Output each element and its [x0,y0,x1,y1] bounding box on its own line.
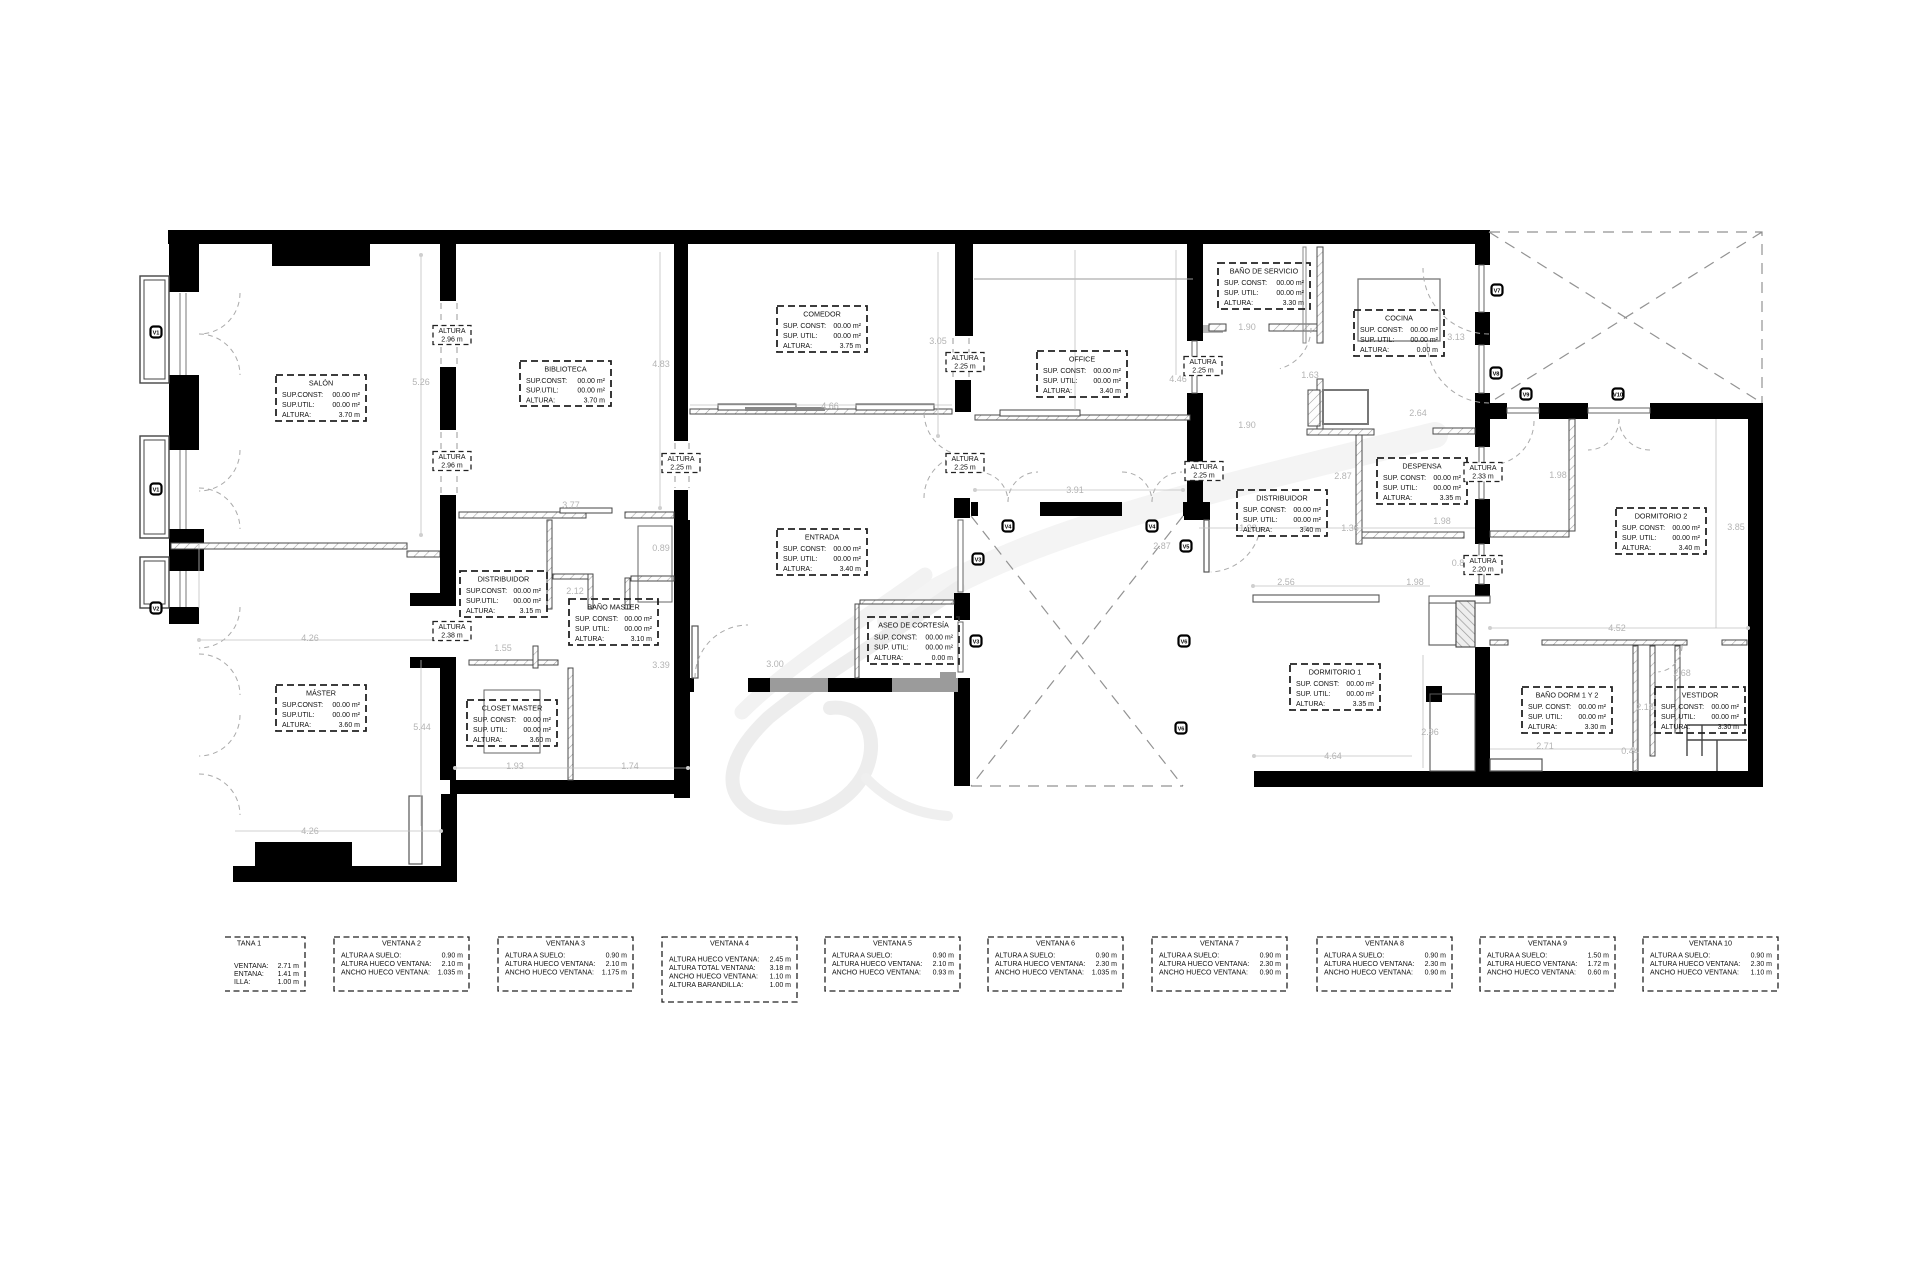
svg-text:1.10 m: 1.10 m [770,974,792,981]
svg-text:0.90 m: 0.90 m [933,953,955,960]
svg-text:00.00 m²: 00.00 m² [624,616,652,623]
svg-text:V7: V7 [1494,288,1501,294]
svg-text:3.60 m: 3.60 m [339,722,361,729]
svg-text:0.93 m: 0.93 m [933,970,955,977]
svg-text:V3: V3 [975,557,982,563]
svg-text:0.90 m: 0.90 m [442,953,464,960]
svg-text:ALTURA:: ALTURA: [783,343,812,350]
svg-text:00.00 m²: 00.00 m² [1433,485,1461,492]
svg-text:0.00 m: 0.00 m [932,655,954,662]
svg-text:VENTANA 3: VENTANA 3 [546,939,585,948]
svg-text:ALTURA: ALTURA [1190,464,1217,471]
svg-text:SUP. CONST:: SUP. CONST: [874,634,917,641]
svg-text:ALTURA A SUELO:: ALTURA A SUELO: [832,953,892,960]
svg-text:SUP. UTIL:: SUP. UTIL: [575,626,610,633]
svg-text:SUP. CONST:: SUP. CONST: [1661,704,1704,711]
svg-text:1.175 m: 1.175 m [602,970,627,977]
svg-text:ALTURA A SUELO:: ALTURA A SUELO: [1487,953,1547,960]
svg-text:0.44: 0.44 [1621,746,1639,756]
svg-text:2.30 m: 2.30 m [1425,961,1447,968]
svg-text:SUP. UTIL:: SUP. UTIL: [1661,714,1696,721]
svg-text:V6: V6 [1181,639,1188,645]
svg-text:1.035 m: 1.035 m [438,970,463,977]
svg-text:2.12: 2.12 [566,586,584,596]
svg-text:00.00 m²: 00.00 m² [1293,517,1321,524]
svg-text:00.00 m²: 00.00 m² [513,588,541,595]
svg-text:DORMITORIO 2: DORMITORIO 2 [1635,512,1688,521]
svg-text:DORMITORIO 1: DORMITORIO 1 [1309,668,1362,677]
svg-text:BAÑO DE SERVICIO: BAÑO DE SERVICIO [1230,267,1299,276]
svg-text:1.36: 1.36 [1341,523,1359,533]
svg-text:V4: V4 [1149,524,1157,530]
svg-text:V1: V1 [153,330,160,336]
svg-text:V1: V1 [153,487,160,493]
svg-text:3.39: 3.39 [652,660,670,670]
svg-text:00.00 m²: 00.00 m² [523,717,551,724]
svg-text:00.00 m²: 00.00 m² [1276,290,1304,297]
svg-text:VENTANA 4: VENTANA 4 [710,939,749,948]
svg-text:2.33 m: 2.33 m [1472,474,1494,481]
svg-text:ALTURA:: ALTURA: [282,412,311,419]
svg-text:ALTURA:: ALTURA: [1224,300,1253,307]
svg-text:1.98: 1.98 [1406,577,1424,587]
svg-text:2.64: 2.64 [1409,408,1427,418]
svg-text:ANCHO HUECO VENTANA:: ANCHO HUECO VENTANA: [995,970,1084,977]
svg-text:SUP. CONST:: SUP. CONST: [1296,681,1339,688]
svg-text:00.00 m²: 00.00 m² [1093,378,1121,385]
svg-text:2.87: 2.87 [1334,471,1352,481]
svg-text:1.10 m: 1.10 m [1751,970,1773,977]
svg-text:V6: V6 [1178,726,1185,732]
svg-text:3.35 m: 3.35 m [1440,495,1462,502]
svg-text:00.00 m²: 00.00 m² [1346,681,1374,688]
svg-text:0.89: 0.89 [652,543,670,553]
svg-text:ALTURA HUECO VENTANA:: ALTURA HUECO VENTANA: [995,961,1085,968]
svg-text:SUP. CONST:: SUP. CONST: [473,717,516,724]
svg-text:ALTURA HUECO VENTANA:: ALTURA HUECO VENTANA: [1159,961,1249,968]
svg-text:ALTURA HUECO VENTANA:: ALTURA HUECO VENTANA: [669,957,759,964]
svg-text:ANCHO HUECO VENTANA:: ANCHO HUECO VENTANA: [505,970,594,977]
svg-text:0.90 m: 0.90 m [1425,953,1447,960]
svg-text:1.98: 1.98 [1433,516,1451,526]
svg-text:3.75 m: 3.75 m [840,343,862,350]
svg-text:ALTURA HUECO VENTANA:: ALTURA HUECO VENTANA: [1324,961,1414,968]
svg-text:ALTURA HUECO VENTANA:: ALTURA HUECO VENTANA: [1487,961,1577,968]
svg-text:1.41 m: 1.41 m [278,971,300,978]
svg-text:SUP. CONST:: SUP. CONST: [1383,475,1426,482]
svg-text:00.00 m²: 00.00 m² [332,702,360,709]
svg-text:ANCHO HUECO VENTANA:: ANCHO HUECO VENTANA: [1487,970,1576,977]
svg-text:ASEO DE CORTESÍA: ASEO DE CORTESÍA [878,621,949,630]
svg-text:ALTURA: ALTURA [951,355,978,362]
svg-text:00.00 m²: 00.00 m² [577,388,605,395]
svg-text:ANCHO HUECO VENTANA:: ANCHO HUECO VENTANA: [1324,970,1413,977]
svg-text:3.85: 3.85 [1727,522,1745,532]
svg-text:VENTANA 8: VENTANA 8 [1365,939,1404,948]
svg-text:1.74: 1.74 [621,761,639,771]
svg-text:V5: V5 [1183,544,1190,550]
svg-text:V2: V2 [153,606,160,612]
svg-text:ANCHO HUECO VENTANA:: ANCHO HUECO VENTANA: [1650,970,1739,977]
svg-text:3.35 m: 3.35 m [1353,701,1375,708]
svg-text:ALTURA:: ALTURA: [1528,724,1557,731]
svg-text:00.00 m²: 00.00 m² [833,546,861,553]
svg-text:00.00 m²: 00.00 m² [1711,704,1739,711]
svg-text:00.00 m²: 00.00 m² [1672,535,1700,542]
svg-text:ALTURA: ALTURA [438,328,465,335]
svg-text:ALTURA: ALTURA [1189,359,1216,366]
svg-text:1.00 m: 1.00 m [770,982,792,989]
svg-text:2.68: 2.68 [1673,668,1691,678]
svg-text:SUP. UTIL:: SUP. UTIL: [1243,517,1278,524]
svg-text:00.00 m²: 00.00 m² [332,402,360,409]
svg-text:4.26: 4.26 [301,826,319,836]
svg-text:0.00 m: 0.00 m [1417,347,1439,354]
svg-text:2.25 m: 2.25 m [1193,473,1215,480]
svg-text:0.90 m: 0.90 m [1260,970,1282,977]
svg-text:1.55: 1.55 [494,643,512,653]
svg-text:4.26: 4.26 [301,633,319,643]
svg-text:1.72 m: 1.72 m [1588,961,1610,968]
svg-text:4.64: 4.64 [1324,751,1342,761]
svg-text:3.30 m: 3.30 m [1718,724,1740,731]
svg-text:3.60 m: 3.60 m [530,737,552,744]
svg-text:2.96: 2.96 [1421,727,1439,737]
svg-text:ALTURA A SUELO:: ALTURA A SUELO: [1159,953,1219,960]
svg-text:ALTURA:: ALTURA: [1296,701,1325,708]
svg-text:ALTURA:: ALTURA: [1661,724,1690,731]
svg-text:3.30 m: 3.30 m [1585,724,1607,731]
svg-text:SUP.UTIL:: SUP.UTIL: [466,598,499,605]
svg-text:3.13: 3.13 [1447,332,1465,342]
svg-text:0.90 m: 0.90 m [1096,953,1118,960]
svg-text:SUP.UTIL:: SUP.UTIL: [526,388,559,395]
svg-text:ALTURA:: ALTURA: [466,608,495,615]
svg-text:2.10 m: 2.10 m [442,961,464,968]
svg-text:2.25 m: 2.25 m [954,465,976,472]
svg-text:CLOSET MASTER: CLOSET MASTER [482,704,543,713]
svg-text:ALTURA: ALTURA [1469,465,1496,472]
svg-text:00.00 m²: 00.00 m² [1433,475,1461,482]
svg-text:ANCHO HUECO VENTANA:: ANCHO HUECO VENTANA: [341,970,430,977]
svg-text:0.90 m: 0.90 m [606,953,628,960]
svg-text:SUP. CONST:: SUP. CONST: [1224,280,1267,287]
svg-text:2.96 m: 2.96 m [441,463,463,470]
svg-text:ALTURA:: ALTURA: [1383,495,1412,502]
svg-text:ALTURA A SUELO:: ALTURA A SUELO: [1650,953,1710,960]
svg-text:SUP. UTIL:: SUP. UTIL: [1383,485,1418,492]
svg-text:1.035 m: 1.035 m [1092,970,1117,977]
svg-text:00.00 m²: 00.00 m² [624,626,652,633]
svg-text:2.96 m: 2.96 m [441,337,463,344]
svg-text:2.30 m: 2.30 m [1260,961,1282,968]
svg-text:ENTANA:: ENTANA: [234,971,264,978]
svg-text:00.00 m²: 00.00 m² [513,598,541,605]
svg-text:ALTURA: ALTURA [438,454,465,461]
svg-text:VENTANA:: VENTANA: [234,963,269,970]
svg-text:VENTANA 9: VENTANA 9 [1528,939,1567,948]
svg-text:3.15 m: 3.15 m [520,608,542,615]
svg-text:0.90 m: 0.90 m [1425,970,1447,977]
svg-text:4.66: 4.66 [821,401,839,411]
svg-text:SUP. UTIL:: SUP. UTIL: [1360,337,1395,344]
svg-text:ALTURA A SUELO:: ALTURA A SUELO: [505,953,565,960]
svg-text:VENTANA 7: VENTANA 7 [1200,939,1239,948]
svg-text:0.90 m: 0.90 m [1260,953,1282,960]
svg-text:SUP. CONST:: SUP. CONST: [783,323,826,330]
svg-text:SUP. UTIL:: SUP. UTIL: [1622,535,1657,542]
svg-text:2.25 m: 2.25 m [670,465,692,472]
svg-text:BAÑO MASTER: BAÑO MASTER [587,603,639,612]
svg-text:2.87: 2.87 [1153,541,1171,551]
svg-text:SUP.UTIL:: SUP.UTIL: [282,712,315,719]
svg-text:SUP. CONST:: SUP. CONST: [575,616,618,623]
svg-text:00.00 m²: 00.00 m² [833,556,861,563]
svg-text:4.52: 4.52 [1608,623,1626,633]
svg-text:ALTURA HUECO VENTANA:: ALTURA HUECO VENTANA: [832,961,922,968]
svg-text:ALTURA:: ALTURA: [874,655,903,662]
svg-text:ALTURA A SUELO:: ALTURA A SUELO: [995,953,1055,960]
svg-text:DISTRIBUIDOR: DISTRIBUIDOR [1256,494,1308,503]
svg-text:SUP. UTIL:: SUP. UTIL: [783,333,818,340]
svg-text:3.77: 3.77 [562,500,580,510]
svg-text:00.00 m²: 00.00 m² [925,645,953,652]
svg-text:BAÑO DORM 1 Y 2: BAÑO DORM 1 Y 2 [1536,691,1599,700]
svg-text:ALTURA HUECO VENTANA:: ALTURA HUECO VENTANA: [341,961,431,968]
svg-text:SUP. CONST:: SUP. CONST: [1360,327,1403,334]
svg-text:0.90 m: 0.90 m [1751,953,1773,960]
svg-text:V3: V3 [973,639,980,645]
svg-text:MÁSTER: MÁSTER [306,689,336,698]
svg-text:2.30 m: 2.30 m [1096,961,1118,968]
svg-text:3.30 m: 3.30 m [1283,300,1305,307]
svg-text:00.00 m²: 00.00 m² [833,333,861,340]
svg-text:SUP. UTIL:: SUP. UTIL: [1528,714,1563,721]
svg-text:ALTURA:: ALTURA: [526,397,555,404]
svg-text:00.00 m²: 00.00 m² [1711,714,1739,721]
svg-text:ALTURA: ALTURA [1469,558,1496,565]
svg-text:SALÓN: SALÓN [309,379,333,388]
svg-text:VENTANA 2: VENTANA 2 [382,939,421,948]
svg-text:3.40 m: 3.40 m [1300,527,1322,534]
svg-text:2.45 m: 2.45 m [770,957,792,964]
svg-text:2.10 m: 2.10 m [933,961,955,968]
svg-text:00.00 m²: 00.00 m² [1093,368,1121,375]
svg-text:ALTURA A SUELO:: ALTURA A SUELO: [1324,953,1384,960]
svg-text:3.10 m: 3.10 m [631,636,653,643]
svg-text:3.70 m: 3.70 m [584,397,606,404]
svg-text:2.71: 2.71 [1536,741,1554,751]
svg-text:ANCHO HUECO VENTANA:: ANCHO HUECO VENTANA: [669,974,758,981]
svg-text:1.93: 1.93 [506,761,524,771]
svg-text:ALTURA BARANDILLA:: ALTURA BARANDILLA: [669,982,743,989]
svg-text:2.38 m: 2.38 m [441,633,463,640]
svg-text:3.00: 3.00 [766,659,784,669]
svg-text:SUP. UTIL:: SUP. UTIL: [1296,691,1331,698]
svg-text:1.63: 1.63 [1301,370,1319,380]
svg-text:V10: V10 [1613,392,1623,398]
svg-text:ALTURA:: ALTURA: [783,566,812,573]
svg-text:VENTANA 6: VENTANA 6 [1036,939,1075,948]
svg-text:VENTANA 10: VENTANA 10 [1689,939,1732,948]
svg-text:0.8: 0.8 [1452,558,1465,568]
svg-text:00.00 m²: 00.00 m² [925,634,953,641]
svg-text:2.25 m: 2.25 m [954,364,976,371]
svg-text:SUP. CONST:: SUP. CONST: [783,546,826,553]
svg-text:2.18: 2.18 [1636,702,1654,712]
svg-text:00.00 m²: 00.00 m² [1293,507,1321,514]
svg-text:ALTURA: ALTURA [951,456,978,463]
svg-text:00.00 m²: 00.00 m² [332,712,360,719]
svg-text:3.70 m: 3.70 m [339,412,361,419]
svg-text:00.00 m²: 00.00 m² [1578,704,1606,711]
svg-text:ALTURA HUECO VENTANA:: ALTURA HUECO VENTANA: [505,961,595,968]
svg-text:00.00 m²: 00.00 m² [1672,525,1700,532]
svg-text:1.98: 1.98 [1549,470,1567,480]
svg-text:BIBLIOTECA: BIBLIOTECA [544,365,587,374]
svg-text:ALTURA HUECO VENTANA:: ALTURA HUECO VENTANA: [1650,961,1740,968]
svg-text:ALTURA TOTAL VENTANA:: ALTURA TOTAL VENTANA: [669,965,756,972]
svg-text:1.50 m: 1.50 m [1588,953,1610,960]
svg-text:SUP.CONST:: SUP.CONST: [466,588,507,595]
svg-text:DISTRIBUIDOR: DISTRIBUIDOR [478,575,530,584]
svg-text:V4: V4 [1005,524,1013,530]
svg-text:3.40 m: 3.40 m [840,566,862,573]
svg-text:V8: V8 [1493,371,1500,377]
svg-text:ANCHO HUECO VENTANA:: ANCHO HUECO VENTANA: [832,970,921,977]
svg-text:5.26: 5.26 [412,377,430,387]
svg-text:00.00 m²: 00.00 m² [577,378,605,385]
svg-text:DESPENSA: DESPENSA [1402,462,1441,471]
svg-text:2.30 m: 2.30 m [1751,961,1773,968]
svg-text:SUP. CONST:: SUP. CONST: [1528,704,1571,711]
svg-text:2.20 m: 2.20 m [1472,567,1494,574]
svg-text:V9: V9 [1523,392,1530,398]
svg-text:3.91: 3.91 [1066,485,1084,495]
svg-text:ALTURA:: ALTURA: [575,636,604,643]
svg-text:1.00 m: 1.00 m [278,979,300,986]
svg-text:ANCHO HUECO VENTANA:: ANCHO HUECO VENTANA: [1159,970,1248,977]
svg-text:00.00 m²: 00.00 m² [332,392,360,399]
svg-text:ALTURA:: ALTURA: [1360,347,1389,354]
svg-text:ALTURA:: ALTURA: [282,722,311,729]
svg-text:2.56: 2.56 [1277,577,1295,587]
svg-text:SUP. CONST:: SUP. CONST: [1622,525,1665,532]
svg-text:00.00 m²: 00.00 m² [1276,280,1304,287]
svg-text:00.00 m²: 00.00 m² [833,323,861,330]
svg-text:SUP. UTIL:: SUP. UTIL: [783,556,818,563]
svg-text:SUP. UTIL:: SUP. UTIL: [1224,290,1259,297]
svg-text:ENTRADA: ENTRADA [805,533,840,542]
svg-text:TANA 1: TANA 1 [237,939,261,948]
svg-text:ALTURA:: ALTURA: [1043,388,1072,395]
svg-text:SUP. CONST:: SUP. CONST: [1243,507,1286,514]
svg-text:SUP. UTIL:: SUP. UTIL: [473,727,508,734]
svg-text:3.05: 3.05 [929,336,947,346]
svg-text:SUP. UTIL:: SUP. UTIL: [874,645,909,652]
svg-text:00.00 m²: 00.00 m² [1410,337,1438,344]
svg-text:VENTANA 5: VENTANA 5 [873,939,912,948]
svg-text:VESTIDOR: VESTIDOR [1682,691,1719,700]
svg-text:SUP.CONST:: SUP.CONST: [526,378,567,385]
svg-text:SUP.UTIL:: SUP.UTIL: [282,402,315,409]
svg-text:ALTURA:: ALTURA: [473,737,502,744]
svg-text:3.18 m: 3.18 m [770,965,792,972]
svg-text:2.71 m: 2.71 m [278,963,300,970]
svg-text:2.10 m: 2.10 m [606,961,628,968]
svg-text:3.40 m: 3.40 m [1679,545,1701,552]
svg-text:00.00 m²: 00.00 m² [1578,714,1606,721]
svg-text:COMEDOR: COMEDOR [803,310,841,319]
svg-text:ALTURA: ALTURA [438,624,465,631]
svg-text:ALTURA:: ALTURA: [1243,527,1272,534]
svg-text:00.00 m²: 00.00 m² [523,727,551,734]
svg-text:SUP. CONST:: SUP. CONST: [1043,368,1086,375]
svg-text:4.83: 4.83 [652,359,670,369]
svg-text:ALTURA A SUELO:: ALTURA A SUELO: [341,953,401,960]
svg-text:OFFICE: OFFICE [1069,355,1096,364]
svg-text:00.00 m²: 00.00 m² [1346,691,1374,698]
svg-text:ALTURA: ALTURA [667,456,694,463]
svg-text:0.60 m: 0.60 m [1588,970,1610,977]
svg-text:ILLA:: ILLA: [234,979,250,986]
svg-text:SUP.CONST:: SUP.CONST: [282,702,323,709]
svg-text:3.40 m: 3.40 m [1100,388,1122,395]
svg-text:00.00 m²: 00.00 m² [1410,327,1438,334]
svg-text:1.90: 1.90 [1238,322,1256,332]
svg-text:SUP. UTIL:: SUP. UTIL: [1043,378,1078,385]
svg-text:2.25 m: 2.25 m [1192,368,1214,375]
svg-text:5.44: 5.44 [413,722,431,732]
svg-text:COCINA: COCINA [1385,314,1413,323]
svg-text:SUP.CONST:: SUP.CONST: [282,392,323,399]
svg-text:ALTURA:: ALTURA: [1622,545,1651,552]
svg-text:1.90: 1.90 [1238,420,1256,430]
